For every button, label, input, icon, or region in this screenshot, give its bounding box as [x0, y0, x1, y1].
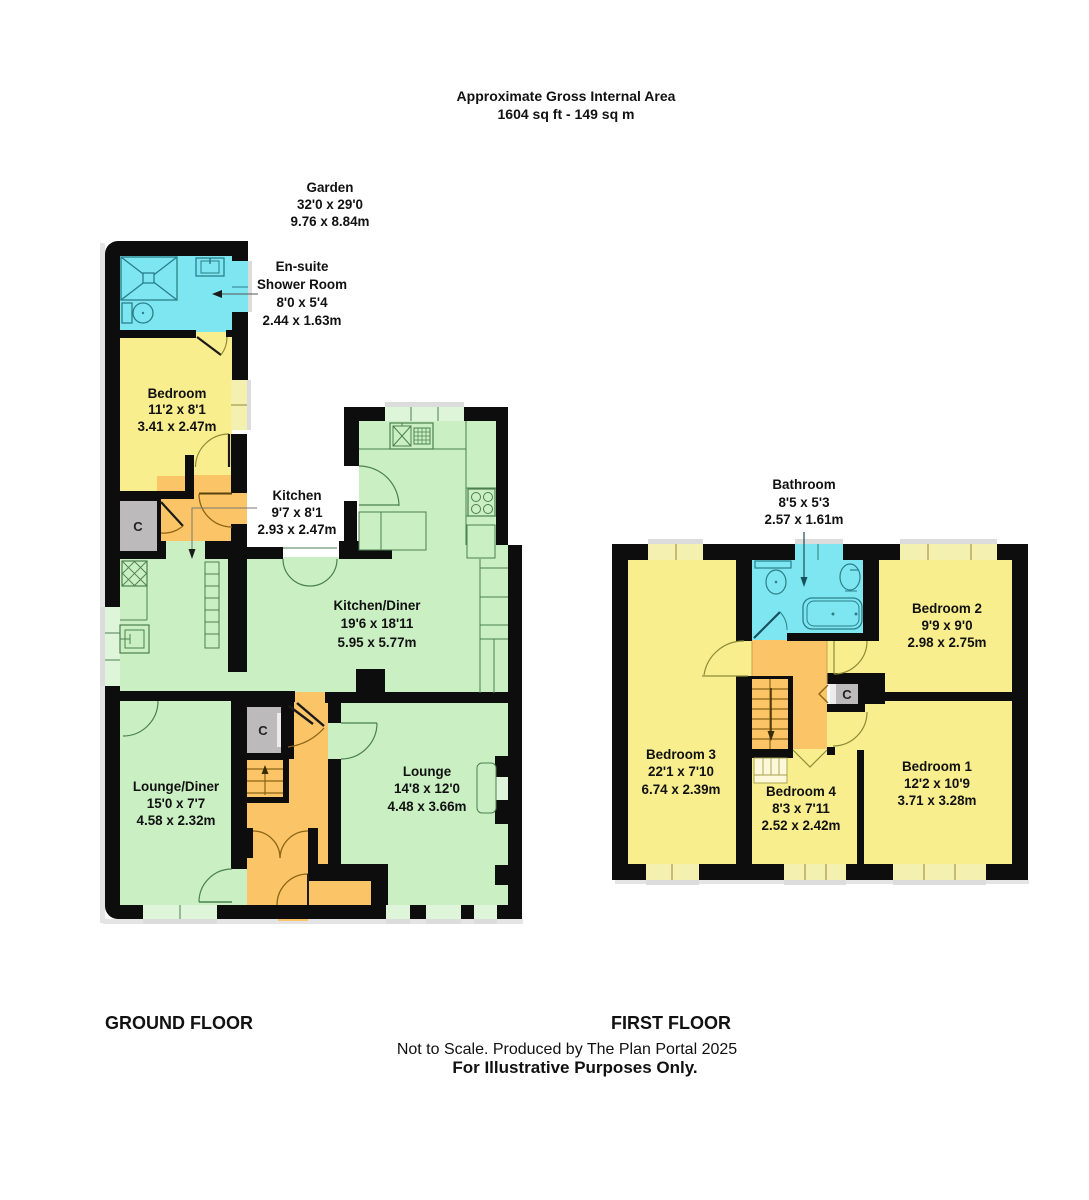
svg-text:6.74 x 2.39m: 6.74 x 2.39m	[642, 782, 721, 797]
svg-text:19'6 x 18'11: 19'6 x 18'11	[341, 616, 414, 631]
svg-text:Lounge/Diner: Lounge/Diner	[133, 779, 220, 794]
svg-text:Not to Scale. Produced by The: Not to Scale. Produced by The Plan Porta…	[397, 1041, 737, 1058]
svg-text:4.48 x 3.66m: 4.48 x 3.66m	[388, 799, 467, 814]
svg-text:Lounge: Lounge	[403, 764, 451, 779]
svg-text:Bedroom 4: Bedroom 4	[766, 784, 836, 799]
svg-text:2.57 x 1.61m: 2.57 x 1.61m	[765, 512, 844, 527]
svg-text:15'0 x 7'7: 15'0 x 7'7	[147, 796, 206, 811]
svg-text:C: C	[133, 519, 143, 534]
svg-text:For Illustrative Purposes Only: For Illustrative Purposes Only.	[452, 1058, 697, 1077]
svg-text:4.58 x 2.32m: 4.58 x 2.32m	[137, 813, 216, 828]
svg-text:2.44 x 1.63m: 2.44 x 1.63m	[263, 313, 342, 328]
svg-text:Bedroom 1: Bedroom 1	[902, 759, 972, 774]
svg-text:Approximate Gross Internal Are: Approximate Gross Internal Area	[457, 88, 676, 104]
svg-text:2.93 x 2.47m: 2.93 x 2.47m	[258, 522, 337, 537]
svg-text:Kitchen/Diner: Kitchen/Diner	[333, 598, 421, 613]
svg-text:Garden: Garden	[307, 180, 354, 195]
svg-text:5.95 x 5.77m: 5.95 x 5.77m	[338, 635, 417, 650]
svg-text:9.76 x 8.84m: 9.76 x 8.84m	[291, 214, 370, 229]
svg-text:3.71 x 3.28m: 3.71 x 3.28m	[898, 793, 977, 808]
svg-text:8'3 x 7'11: 8'3 x 7'11	[772, 801, 830, 816]
svg-text:Bedroom 3: Bedroom 3	[646, 747, 716, 762]
svg-text:Kitchen: Kitchen	[272, 488, 321, 503]
svg-text:1604 sq ft - 149 sq m: 1604 sq ft - 149 sq m	[498, 106, 635, 122]
svg-text:FIRST FLOOR: FIRST FLOOR	[611, 1013, 731, 1033]
svg-text:9'7 x 8'1: 9'7 x 8'1	[271, 505, 323, 520]
svg-text:12'2 x 10'9: 12'2 x 10'9	[904, 776, 970, 791]
svg-text:GROUND FLOOR: GROUND FLOOR	[105, 1013, 253, 1033]
svg-text:14'8 x 12'0: 14'8 x 12'0	[394, 781, 460, 796]
svg-text:Bedroom: Bedroom	[148, 386, 207, 401]
svg-text:Bathroom: Bathroom	[772, 477, 835, 492]
svg-text:9'9 x 9'0: 9'9 x 9'0	[921, 618, 972, 633]
svg-text:En-suite: En-suite	[276, 259, 329, 274]
svg-text:11'2 x 8'1: 11'2 x 8'1	[148, 402, 206, 417]
svg-text:Bedroom 2: Bedroom 2	[912, 601, 982, 616]
svg-text:C: C	[258, 723, 268, 738]
svg-text:C: C	[842, 687, 852, 702]
svg-text:22'1 x 7'10: 22'1 x 7'10	[648, 764, 714, 779]
svg-text:8'5 x 5'3: 8'5 x 5'3	[778, 495, 829, 510]
svg-text:3.41 x 2.47m: 3.41 x 2.47m	[138, 419, 217, 434]
svg-text:Shower Room: Shower Room	[257, 277, 347, 292]
svg-text:8'0 x 5'4: 8'0 x 5'4	[276, 295, 328, 310]
svg-text:2.52 x 2.42m: 2.52 x 2.42m	[762, 818, 841, 833]
svg-text:32'0 x 29'0: 32'0 x 29'0	[297, 197, 363, 212]
svg-text:2.98 x 2.75m: 2.98 x 2.75m	[908, 635, 987, 650]
